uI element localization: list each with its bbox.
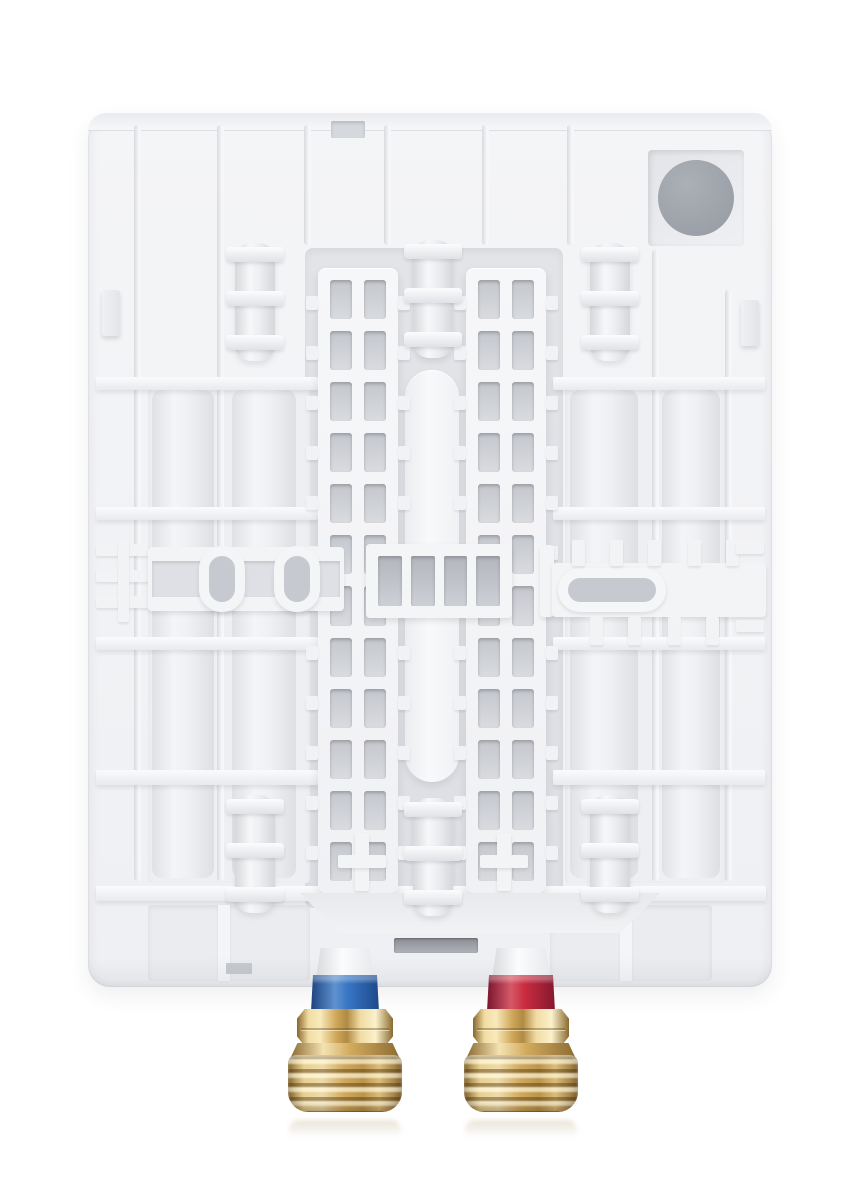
rib-groove bbox=[482, 125, 489, 245]
grid-hole bbox=[478, 382, 500, 421]
grid-hole bbox=[478, 638, 500, 677]
grid-hole bbox=[512, 791, 534, 830]
rib-groove bbox=[217, 125, 224, 881]
horizontal-rail bbox=[553, 377, 765, 390]
grid-hole bbox=[478, 689, 500, 728]
grid-hole bbox=[478, 433, 500, 472]
grid-hole bbox=[512, 586, 534, 625]
grid-hole bbox=[512, 638, 534, 677]
grid-hole bbox=[330, 280, 352, 319]
window-frame-inner bbox=[366, 544, 512, 618]
grid-hole bbox=[478, 791, 500, 830]
clip-band bbox=[226, 887, 284, 902]
cold-ring bbox=[311, 975, 379, 1012]
grid-hole bbox=[512, 740, 534, 779]
comb-tooth bbox=[628, 617, 641, 645]
grid-hole bbox=[512, 535, 534, 574]
grid-hole bbox=[330, 433, 352, 472]
clip-band bbox=[226, 335, 284, 350]
edge-bracket bbox=[736, 620, 764, 632]
pipe-clip bbox=[404, 798, 462, 916]
brass-hex-nut bbox=[473, 1009, 569, 1046]
grid-hole bbox=[512, 331, 534, 370]
brass-hex-nut bbox=[297, 1009, 393, 1046]
cross-boss bbox=[338, 855, 386, 868]
fitting-reflection bbox=[289, 1120, 401, 1142]
comb-bar bbox=[118, 540, 129, 622]
clip-band bbox=[404, 332, 462, 347]
grid-hole bbox=[478, 280, 500, 319]
comb-tooth bbox=[706, 617, 719, 645]
clip-band bbox=[404, 846, 462, 861]
fitting-reflection bbox=[465, 1120, 577, 1142]
clip-band bbox=[226, 291, 284, 306]
housing-bottom-lip bbox=[88, 957, 772, 987]
comb-tooth bbox=[590, 617, 603, 645]
grid-hole bbox=[512, 689, 534, 728]
grid-hole bbox=[330, 638, 352, 677]
product-photo bbox=[0, 0, 867, 1200]
clip-band bbox=[581, 843, 639, 858]
pipe-clip bbox=[581, 795, 639, 913]
fitting-collar bbox=[492, 948, 550, 978]
horizontal-rail bbox=[553, 507, 765, 520]
comb-tooth bbox=[688, 540, 701, 566]
cable-entry-grommet bbox=[658, 160, 734, 236]
horizontal-rail bbox=[96, 770, 318, 785]
brass-thread-section bbox=[288, 1055, 402, 1112]
grid-hole bbox=[330, 740, 352, 779]
hot-outlet-fitting bbox=[463, 948, 579, 1144]
window-slot bbox=[411, 556, 435, 606]
window-slot bbox=[444, 556, 468, 606]
grid-hole bbox=[364, 638, 386, 677]
grid-hole bbox=[364, 433, 386, 472]
clip-band bbox=[226, 799, 284, 814]
grid-hole bbox=[364, 382, 386, 421]
clip-band bbox=[404, 244, 462, 259]
clip-band bbox=[581, 335, 639, 350]
side-tab-left bbox=[102, 290, 120, 336]
pipe-clip bbox=[581, 243, 639, 361]
clip-band bbox=[404, 802, 462, 817]
side-tab-right bbox=[741, 300, 759, 346]
grid-hole bbox=[330, 331, 352, 370]
window-slot bbox=[476, 556, 500, 606]
rib-groove bbox=[134, 125, 141, 881]
rib-groove bbox=[304, 125, 311, 245]
window-slot bbox=[378, 556, 402, 606]
stadium-slot bbox=[558, 568, 666, 612]
rib-groove bbox=[567, 125, 574, 245]
grid-hole bbox=[364, 280, 386, 319]
stadium-rail bbox=[552, 563, 766, 617]
grid-hole bbox=[512, 382, 534, 421]
cross-boss bbox=[480, 855, 528, 868]
horizontal-rail bbox=[96, 637, 318, 650]
grid-hole bbox=[330, 791, 352, 830]
cold-inlet-fitting bbox=[287, 948, 403, 1144]
clip-band bbox=[404, 288, 462, 303]
grid-hole bbox=[512, 433, 534, 472]
grid-hole bbox=[364, 331, 386, 370]
horizontal-rail bbox=[553, 637, 765, 650]
housing-top-lip bbox=[88, 113, 772, 131]
grid-hole bbox=[512, 484, 534, 523]
grid-hole bbox=[364, 689, 386, 728]
keyhole-ring bbox=[199, 546, 245, 612]
comb-tooth bbox=[668, 617, 681, 645]
grid-hole bbox=[364, 791, 386, 830]
grid-hole bbox=[364, 484, 386, 523]
grid-hole bbox=[330, 484, 352, 523]
clip-band bbox=[404, 890, 462, 905]
grid-hole bbox=[364, 740, 386, 779]
horizontal-rail bbox=[96, 507, 318, 520]
clip-band bbox=[226, 843, 284, 858]
clip-band bbox=[581, 247, 639, 262]
rib-groove bbox=[384, 125, 391, 245]
grid-hole bbox=[478, 740, 500, 779]
clip-band bbox=[581, 291, 639, 306]
pipe-clip bbox=[404, 240, 462, 358]
fitting-collar bbox=[316, 948, 374, 978]
pipe-clip bbox=[226, 795, 284, 913]
comb-tooth bbox=[572, 540, 585, 566]
pipe-rib bbox=[152, 390, 214, 878]
comb-tooth bbox=[610, 540, 623, 566]
hot-ring bbox=[487, 975, 555, 1012]
window-frame bbox=[366, 544, 512, 618]
edge-bracket bbox=[736, 542, 764, 554]
grid-hole bbox=[330, 689, 352, 728]
clip-band bbox=[581, 799, 639, 814]
grid-hole bbox=[330, 382, 352, 421]
pipe-clip bbox=[226, 243, 284, 361]
horizontal-rail bbox=[96, 377, 318, 390]
clip-band bbox=[581, 887, 639, 902]
top-knockout-notch bbox=[331, 121, 365, 138]
grid-hole bbox=[478, 484, 500, 523]
keyhole-ring bbox=[274, 546, 320, 612]
grid-hole bbox=[478, 331, 500, 370]
horizontal-rail bbox=[553, 770, 765, 785]
brass-thread-section bbox=[464, 1055, 578, 1112]
clip-band bbox=[226, 247, 284, 262]
comb-tooth bbox=[648, 540, 661, 566]
grid-hole bbox=[512, 280, 534, 319]
